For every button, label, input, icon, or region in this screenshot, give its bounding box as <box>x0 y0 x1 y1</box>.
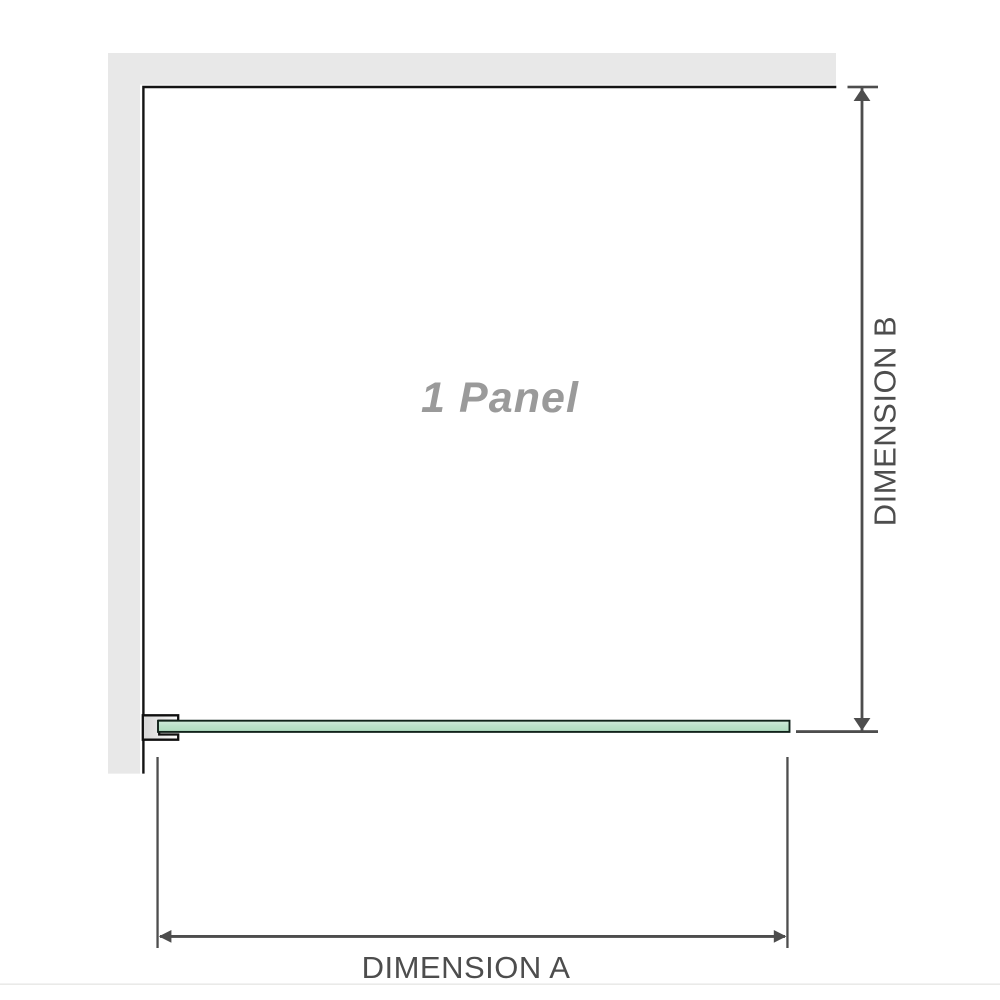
svg-text:1 Panel: 1 Panel <box>421 374 579 422</box>
svg-text:DIMENSION A: DIMENSION A <box>362 950 571 985</box>
svg-text:DIMENSION B: DIMENSION B <box>868 316 903 526</box>
